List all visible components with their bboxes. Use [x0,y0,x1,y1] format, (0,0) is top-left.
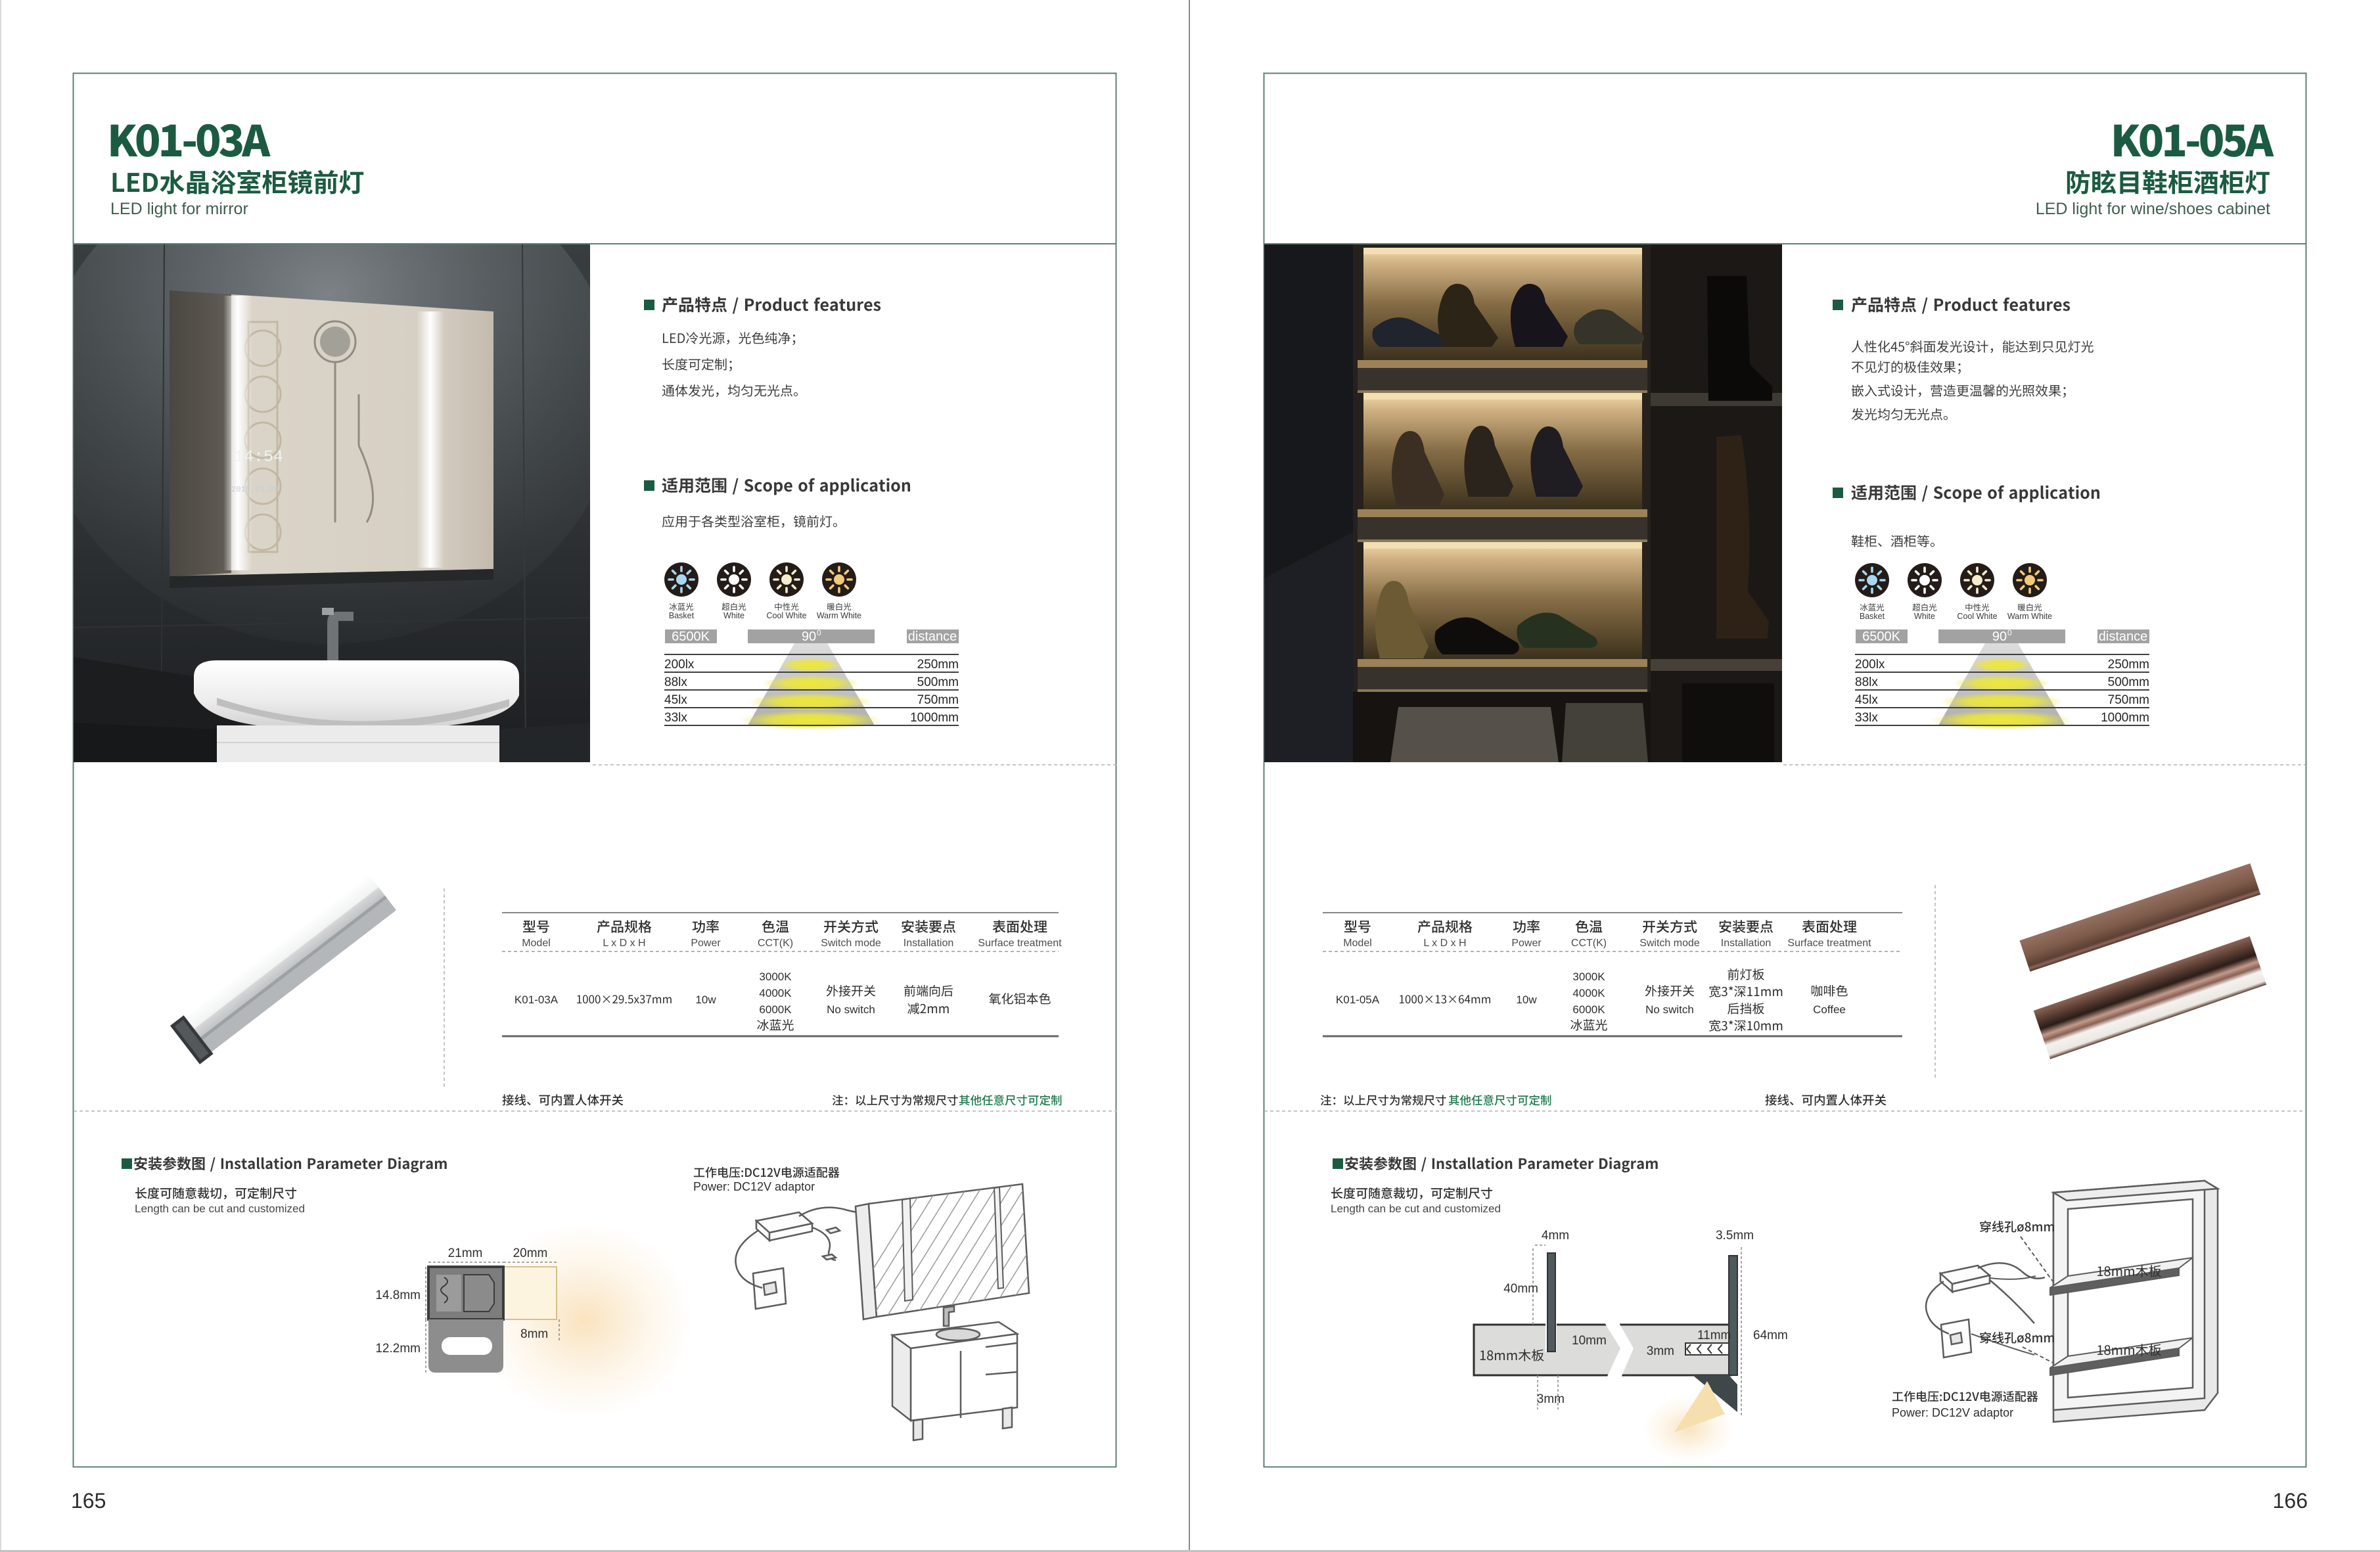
svg-text:165: 165 [71,1489,106,1513]
svg-text:200lx: 200lx [664,658,695,672]
svg-text:6500K: 6500K [1862,629,1900,644]
svg-text:Coffee: Coffee [1813,1003,1846,1016]
svg-text:Cool White: Cool White [766,611,806,620]
svg-text:33lx: 33lx [664,711,687,725]
svg-text:4000K: 4000K [1572,987,1605,999]
svg-text:90: 90 [1992,629,2007,644]
svg-text:500mm: 500mm [917,675,959,689]
svg-text:White: White [1914,612,1935,621]
svg-text:10mm: 10mm [1572,1334,1607,1348]
svg-text:750mm: 750mm [2108,693,2149,707]
svg-text:0: 0 [2007,628,2012,637]
svg-text:Warm White: Warm White [817,611,861,620]
svg-text:distance: distance [2099,629,2148,644]
svg-text:6000K: 6000K [1572,1003,1605,1016]
svg-text:distance: distance [908,629,957,644]
svg-text:45lx: 45lx [1855,693,1878,707]
svg-text:21mm: 21mm [448,1246,483,1260]
svg-text:White: White [723,611,744,620]
svg-text:Switch mode: Switch mode [1639,938,1700,949]
svg-text:K01-03A: K01-03A [515,993,559,1006]
svg-text:Switch mode: Switch mode [821,938,881,949]
svg-text:166: 166 [2273,1489,2308,1513]
svg-text:20mm: 20mm [513,1246,548,1260]
svg-text:10w: 10w [695,993,716,1006]
svg-text:Installation: Installation [904,938,954,949]
svg-text:1000mm: 1000mm [2101,711,2149,725]
svg-text:Surface treatment: Surface treatment [1787,938,1871,949]
svg-text:200lx: 200lx [1855,658,1885,672]
svg-text:No switch: No switch [1645,1003,1694,1016]
svg-text:No switch: No switch [827,1003,875,1016]
svg-text:14.8mm: 14.8mm [375,1289,421,1302]
svg-text:11mm: 11mm [1697,1329,1731,1342]
svg-text:Length can be cut and customiz: Length can be cut and customized [135,1202,305,1215]
svg-text:Length can be cut and customiz: Length can be cut and customized [1331,1202,1501,1215]
svg-text:LED light for wine/shoes cabin: LED light for wine/shoes cabinet [2036,200,2270,218]
svg-text:L x D x H: L x D x H [1423,938,1466,949]
svg-text:LED light for mirror: LED light for mirror [110,200,248,218]
svg-text:Power: DC12V adaptor: Power: DC12V adaptor [693,1180,815,1193]
svg-text:500mm: 500mm [2108,675,2149,689]
svg-text:Basket: Basket [669,611,695,620]
svg-text:250mm: 250mm [2108,658,2149,672]
svg-text:3000K: 3000K [1572,970,1605,983]
svg-text:Model: Model [1343,938,1372,949]
svg-text:45lx: 45lx [664,693,687,707]
svg-text:Warm White: Warm White [2007,612,2052,621]
svg-text:40mm: 40mm [1503,1282,1538,1296]
svg-text:88lx: 88lx [664,675,687,689]
svg-text:88lx: 88lx [1855,675,1878,689]
svg-text:Power: DC12V adaptor: Power: DC12V adaptor [1892,1406,2013,1419]
svg-text:1000mm: 1000mm [910,711,959,725]
svg-text:750mm: 750mm [917,693,959,707]
svg-text:Cool White: Cool White [1957,612,1997,621]
svg-text:64mm: 64mm [1753,1329,1788,1342]
svg-text:3mm: 3mm [1537,1392,1565,1406]
svg-text:Model: Model [522,938,551,949]
svg-text:8mm: 8mm [520,1327,548,1341]
svg-text:12.2mm: 12.2mm [375,1342,421,1356]
svg-text:3mm: 3mm [1647,1344,1674,1358]
svg-text:Power: Power [691,938,721,949]
svg-text:Installation: Installation [1721,938,1772,949]
svg-text:3000K: 3000K [759,970,792,983]
svg-text:4mm: 4mm [1542,1229,1569,1243]
svg-text:6500K: 6500K [672,629,710,644]
svg-text:K01-05A: K01-05A [1336,993,1380,1006]
svg-text:CCT(K): CCT(K) [1571,938,1607,949]
svg-text:250mm: 250mm [917,658,959,672]
svg-text:4000K: 4000K [759,987,792,999]
svg-text:10w: 10w [1516,993,1537,1006]
svg-text:33lx: 33lx [1855,711,1878,725]
svg-text:Basket: Basket [1860,612,1885,621]
svg-text:3.5mm: 3.5mm [1716,1229,1754,1243]
svg-text:6000K: 6000K [759,1003,792,1016]
svg-text:14:54: 14:54 [234,447,283,467]
svg-text:90: 90 [802,629,816,644]
svg-text:CCT(K): CCT(K) [758,938,793,949]
svg-text:0: 0 [817,628,821,637]
svg-text:Power: Power [1511,938,1542,949]
svg-text:2015.01.20: 2015.01.20 [231,485,279,494]
svg-text:Surface treatment: Surface treatment [978,938,1062,949]
svg-text:L x D x H: L x D x H [603,938,645,949]
